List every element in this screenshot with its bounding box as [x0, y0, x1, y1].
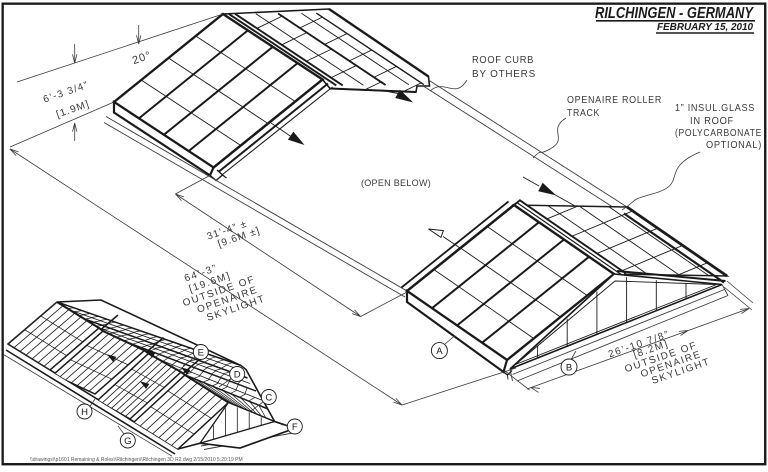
svg-text:F: F: [292, 422, 298, 433]
svg-text:\\drawings\\p1601 Remaining &: \\drawings\\p1601 Remaining & Roles\\Ril…: [30, 457, 243, 463]
svg-text:OPENAIRE ROLLER: OPENAIRE ROLLER: [567, 94, 662, 106]
svg-text:C: C: [265, 392, 272, 403]
svg-text:B: B: [566, 362, 572, 373]
svg-text:ROOF CURB: ROOF CURB: [472, 54, 534, 66]
svg-text:TRACK: TRACK: [567, 107, 600, 119]
svg-text:IN ROOF: IN ROOF: [690, 115, 734, 127]
svg-text:G: G: [124, 436, 131, 447]
svg-text:D: D: [234, 369, 241, 380]
svg-text:1” INSUL.GLASS: 1” INSUL.GLASS: [675, 102, 755, 114]
svg-text:RILCHINGEN - GERMANY: RILCHINGEN - GERMANY: [595, 5, 754, 22]
svg-text:FEBRUARY 15, 2010: FEBRUARY 15, 2010: [657, 22, 753, 33]
svg-text:A: A: [436, 346, 443, 357]
svg-text:(POLYCARBONATE: (POLYCARBONATE: [675, 127, 762, 139]
svg-text:E: E: [198, 347, 204, 358]
svg-text:H: H: [81, 407, 88, 418]
svg-text:(OPEN BELOW): (OPEN BELOW): [361, 178, 431, 188]
svg-text:OPTIONAL): OPTIONAL): [706, 139, 762, 151]
svg-text:BY OTHERS: BY OTHERS: [472, 68, 536, 80]
